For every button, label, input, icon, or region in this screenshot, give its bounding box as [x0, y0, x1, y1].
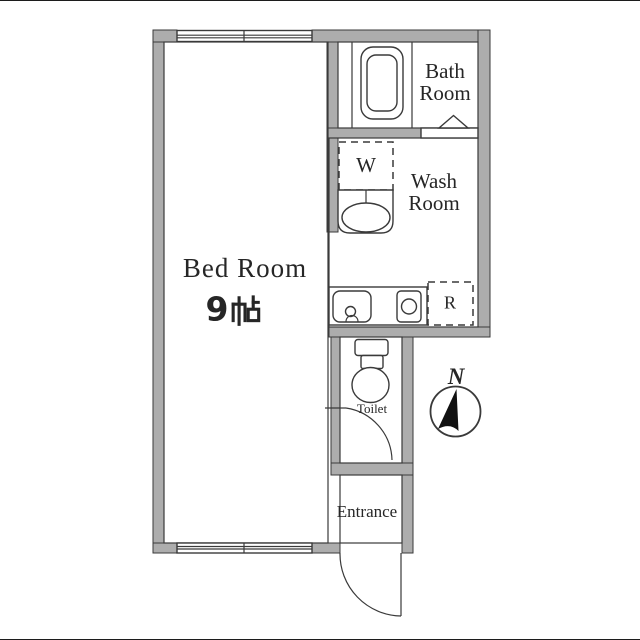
compass	[431, 387, 481, 437]
bathroom-label: Bath Room	[419, 60, 470, 104]
wall-right-upper	[478, 30, 490, 337]
wash-basin	[338, 190, 393, 233]
washing-machine-label: W	[356, 154, 376, 176]
entrance-door	[340, 553, 401, 616]
floor-plan: Bed Room 9 Bath Room Wash Room W R Toile…	[0, 0, 640, 640]
toilet-bowl	[352, 368, 389, 403]
bedroom-size-label: 9	[206, 293, 261, 328]
wall-left	[153, 30, 164, 553]
wall-toilet-bottom	[331, 463, 413, 475]
window-top	[177, 31, 312, 42]
kitchen-counter	[329, 287, 427, 325]
wall-washroom-bottom	[329, 327, 490, 337]
jou-kanji-glyph	[229, 293, 260, 327]
bath-door	[421, 116, 478, 139]
bedroom-label: Bed Room	[183, 254, 307, 282]
compass-north-label: N	[448, 365, 465, 389]
toilet-tank	[355, 340, 388, 356]
bathtub	[361, 47, 403, 119]
sink-drain	[346, 307, 356, 317]
wall-bottom-left-segment	[153, 543, 177, 553]
toilet-neck	[361, 356, 383, 369]
wall-bottom-mid-segment	[312, 543, 340, 553]
burner-ring	[402, 299, 417, 314]
wall-top-left-segment	[153, 30, 177, 42]
bedroom-size-number: 9	[206, 293, 229, 328]
refrigerator-label: R	[444, 294, 456, 313]
wall-toilet-left	[331, 337, 340, 475]
wall-bath-bottom	[327, 128, 421, 138]
toilet-label: Toilet	[357, 402, 387, 416]
wall-top-right-segment	[312, 30, 490, 42]
entrance-label: Entrance	[337, 503, 397, 521]
wall-column-right	[402, 337, 413, 553]
toilet-fixture	[352, 340, 389, 403]
window-bottom	[177, 543, 312, 553]
washroom-label: Wash Room	[408, 170, 459, 214]
